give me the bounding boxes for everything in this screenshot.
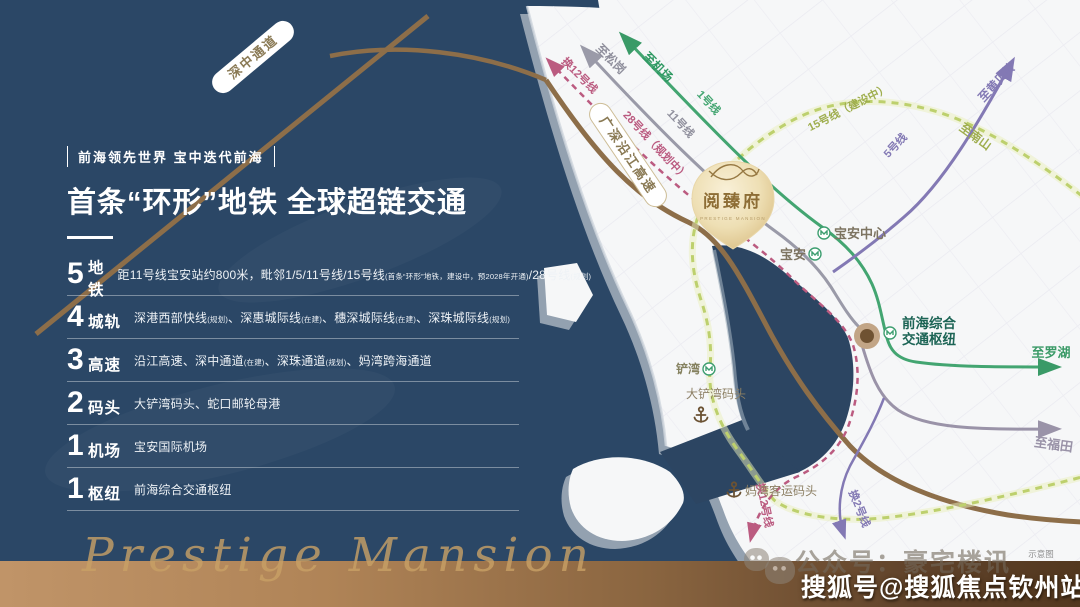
- item-desc: 大铲湾码头、蛇口邮轮母港: [134, 395, 280, 412]
- promo-poster: 深中通道 广深沿江高速 阅臻府 PRESTIGE MANSION 至机场 至松岗…: [0, 0, 1080, 607]
- desc-note: (规划): [489, 315, 510, 324]
- hub-label-line1: 前海综合: [902, 315, 956, 331]
- desc-note: (在建): [395, 315, 416, 324]
- item-count: 1: [67, 433, 86, 459]
- baoan-center-station-label: 宝安中心: [834, 226, 886, 241]
- script-brand-text: Prestige Mansion: [82, 528, 595, 583]
- desc-text: 、妈湾跨海通道: [346, 354, 431, 368]
- dachanwan-port-label: 大铲湾码头: [686, 386, 746, 401]
- item-desc: 沿江高速、深中通道(在建)、深珠通道(规划)、妈湾跨海通道: [134, 352, 432, 369]
- desc-text: 深港西部快线: [134, 311, 207, 325]
- list-item-port: 2 码头 大铲湾码头、蛇口邮轮母港: [67, 382, 519, 425]
- desc-text: 、穗深城际线: [322, 311, 395, 325]
- page-title: 首条“环形”地铁 全球超链交通: [67, 179, 519, 221]
- desc-text: 沿江高速、深中通道: [134, 354, 244, 368]
- item-unit: 枢纽: [88, 482, 121, 504]
- tagline: 前海领先世界 宝中迭代前海: [67, 146, 275, 167]
- item-unit: 码头: [88, 396, 121, 418]
- logo-name: 阅臻府: [703, 191, 763, 211]
- hub-label-line2: 交通枢纽: [902, 331, 956, 347]
- hub-marker-inner: [860, 329, 874, 343]
- desc-text: /28号线: [529, 268, 571, 282]
- sohu-watermark: 搜狐号@搜狐焦点钦州站: [801, 568, 1080, 604]
- mawan-port-label: 妈湾客运码头: [745, 483, 817, 498]
- list-item-metro: 5 地铁 距11号线宝安站约800米，毗邻1/5/11号线/15号线(首条“环形…: [67, 253, 519, 296]
- list-item-highway: 3 高速 沿江高速、深中通道(在建)、深珠通道(规划)、妈湾跨海通道: [67, 339, 519, 382]
- desc-note: (在建): [244, 358, 265, 367]
- list-item-intercity: 4 城轨 深港西部快线(规划)、深惠城际线(在建)、穗深城际线(在建)、深珠城际…: [67, 296, 519, 339]
- desc-text: 距11号线宝安站约800米，毗邻1/5/11号线/15号线: [118, 268, 385, 282]
- metro-icon: [809, 248, 821, 260]
- transport-list: 5 地铁 距11号线宝安站约800米，毗邻1/5/11号线/15号线(首条“环形…: [67, 253, 519, 511]
- desc-note: (首条“环形”地铁，建设中，预2028年开通): [385, 272, 529, 281]
- chanwan-station-label: 铲湾: [676, 361, 700, 376]
- wechat-icon: [765, 557, 795, 584]
- item-count: 4: [67, 304, 86, 330]
- item-unit: 城轨: [88, 310, 121, 332]
- item-count: 2: [67, 390, 86, 416]
- item-desc: 深港西部快线(规划)、深惠城际线(在建)、穗深城际线(在建)、深珠城际线(规划): [134, 309, 510, 326]
- list-item-airport: 1 机场 宝安国际机场: [67, 425, 519, 468]
- desc-text: 、深珠城际线: [416, 311, 489, 325]
- desc-note: (规划): [326, 358, 347, 367]
- info-panel: 前海领先世界 宝中迭代前海 首条“环形”地铁 全球超链交通 5 地铁 距11号线…: [67, 146, 519, 511]
- metro-icon: [818, 227, 830, 239]
- item-unit: 机场: [88, 439, 121, 461]
- item-count: 5: [67, 261, 86, 287]
- desc-text: 、深惠城际线: [228, 311, 301, 325]
- schematic-note: 示意图: [1028, 549, 1054, 559]
- item-unit: 高速: [88, 353, 121, 375]
- list-item-hub: 1 枢纽 前海综合交通枢纽: [67, 468, 519, 511]
- desc-text: 、深珠通道: [265, 354, 326, 368]
- metro-icon: [703, 363, 715, 375]
- item-desc: 距11号线宝安站约800米，毗邻1/5/11号线/15号线(首条“环形”地铁，建…: [118, 266, 592, 283]
- item-desc: 宝安国际机场: [134, 438, 207, 455]
- desc-note: (规划): [207, 315, 228, 324]
- desc-note: (在建): [301, 315, 322, 324]
- baoan-station-label: 宝安: [780, 247, 806, 262]
- desc-text: 宝安国际机场: [134, 440, 207, 454]
- item-desc: 前海综合交通枢纽: [134, 481, 232, 498]
- desc-text: 大铲湾码头、蛇口邮轮母港: [134, 397, 280, 411]
- logo-name-en: PRESTIGE MANSION: [700, 216, 766, 221]
- item-unit: 地铁: [88, 256, 105, 300]
- metro-icon: [884, 327, 896, 339]
- item-count: 1: [67, 476, 86, 502]
- desc-text: 前海综合交通枢纽: [134, 483, 232, 497]
- desc-note: (规划): [570, 272, 591, 281]
- item-count: 3: [67, 347, 86, 373]
- to-luohu-label: 至罗湖: [1031, 345, 1070, 360]
- title-underline: [67, 236, 113, 239]
